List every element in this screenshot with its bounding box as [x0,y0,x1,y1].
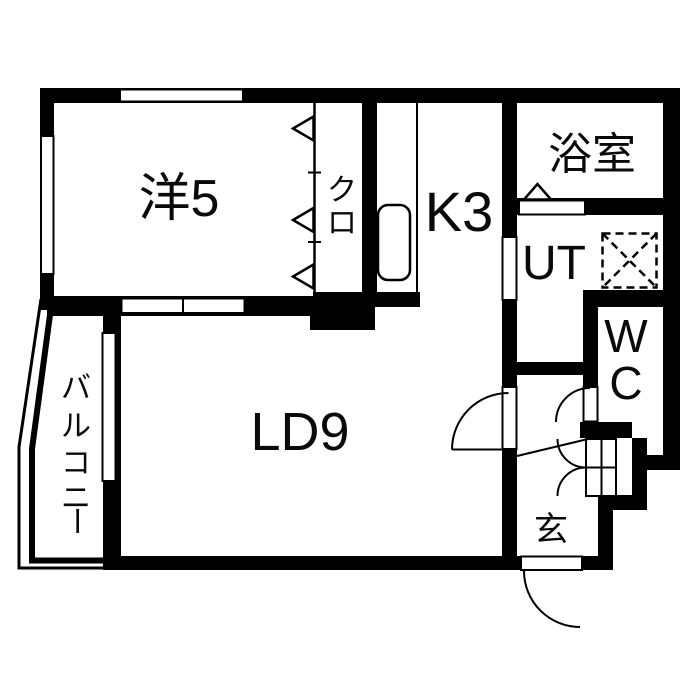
label-bathroom: 浴室 [548,130,636,179]
wall-step-mid [598,495,647,510]
window-left-living [103,333,116,481]
wall-entrance-right [598,510,613,556]
door-bathroom-leaf [519,201,585,215]
label-toilet-char-2: C [609,357,642,409]
label-living-dining: LD9 [250,402,349,462]
sliding-partition [122,299,245,314]
wall-kitchen-utility-mid [502,300,517,387]
wall-right-outer [663,88,680,470]
wall-step-right [632,455,680,470]
label-toilet-char-1: W [604,310,648,362]
floorplan-page: 洋5 ク ロ K3 浴室 UT W C LD9 玄 バ ル コ ニ ー [0,0,700,700]
floorplan-svg: 洋5 ク ロ K3 浴室 UT W C LD9 玄 バ ル コ ニ ー [0,0,700,700]
window-top [120,90,243,102]
label-entrance: 玄 [534,511,568,549]
wall-closet-kitchen [362,103,377,296]
label-western-room: 洋5 [139,170,220,228]
label-closet-char-1: ク [327,174,357,207]
wall-bottom-left [103,556,520,570]
label-closet-char-2: ロ [327,207,357,240]
wall-hall-left [502,448,517,556]
wall-step-block [310,307,375,330]
wall-wc-left [583,290,598,387]
door-living-hall-leaf [503,387,517,449]
label-balcony-char-3: コ [61,447,91,480]
window-left-western [41,136,54,274]
label-kitchen: K3 [425,180,494,243]
wall-hall-utility [517,362,583,375]
label-balcony-char-1: バ [61,372,91,405]
door-wc-leaf [584,387,598,422]
label-utility: UT [522,237,586,290]
label-balcony-char-2: ル [61,410,91,443]
wall-kitchen-utility-upper [502,103,517,237]
wall-bottom-right [582,556,613,570]
label-balcony-char-5: ー [59,506,92,536]
wall-wc-bottom [580,422,632,438]
door-entry-leaf [521,557,582,571]
door-kitchen-utility [503,237,517,300]
label-balcony: バ ル コ ニ ー [59,372,92,536]
